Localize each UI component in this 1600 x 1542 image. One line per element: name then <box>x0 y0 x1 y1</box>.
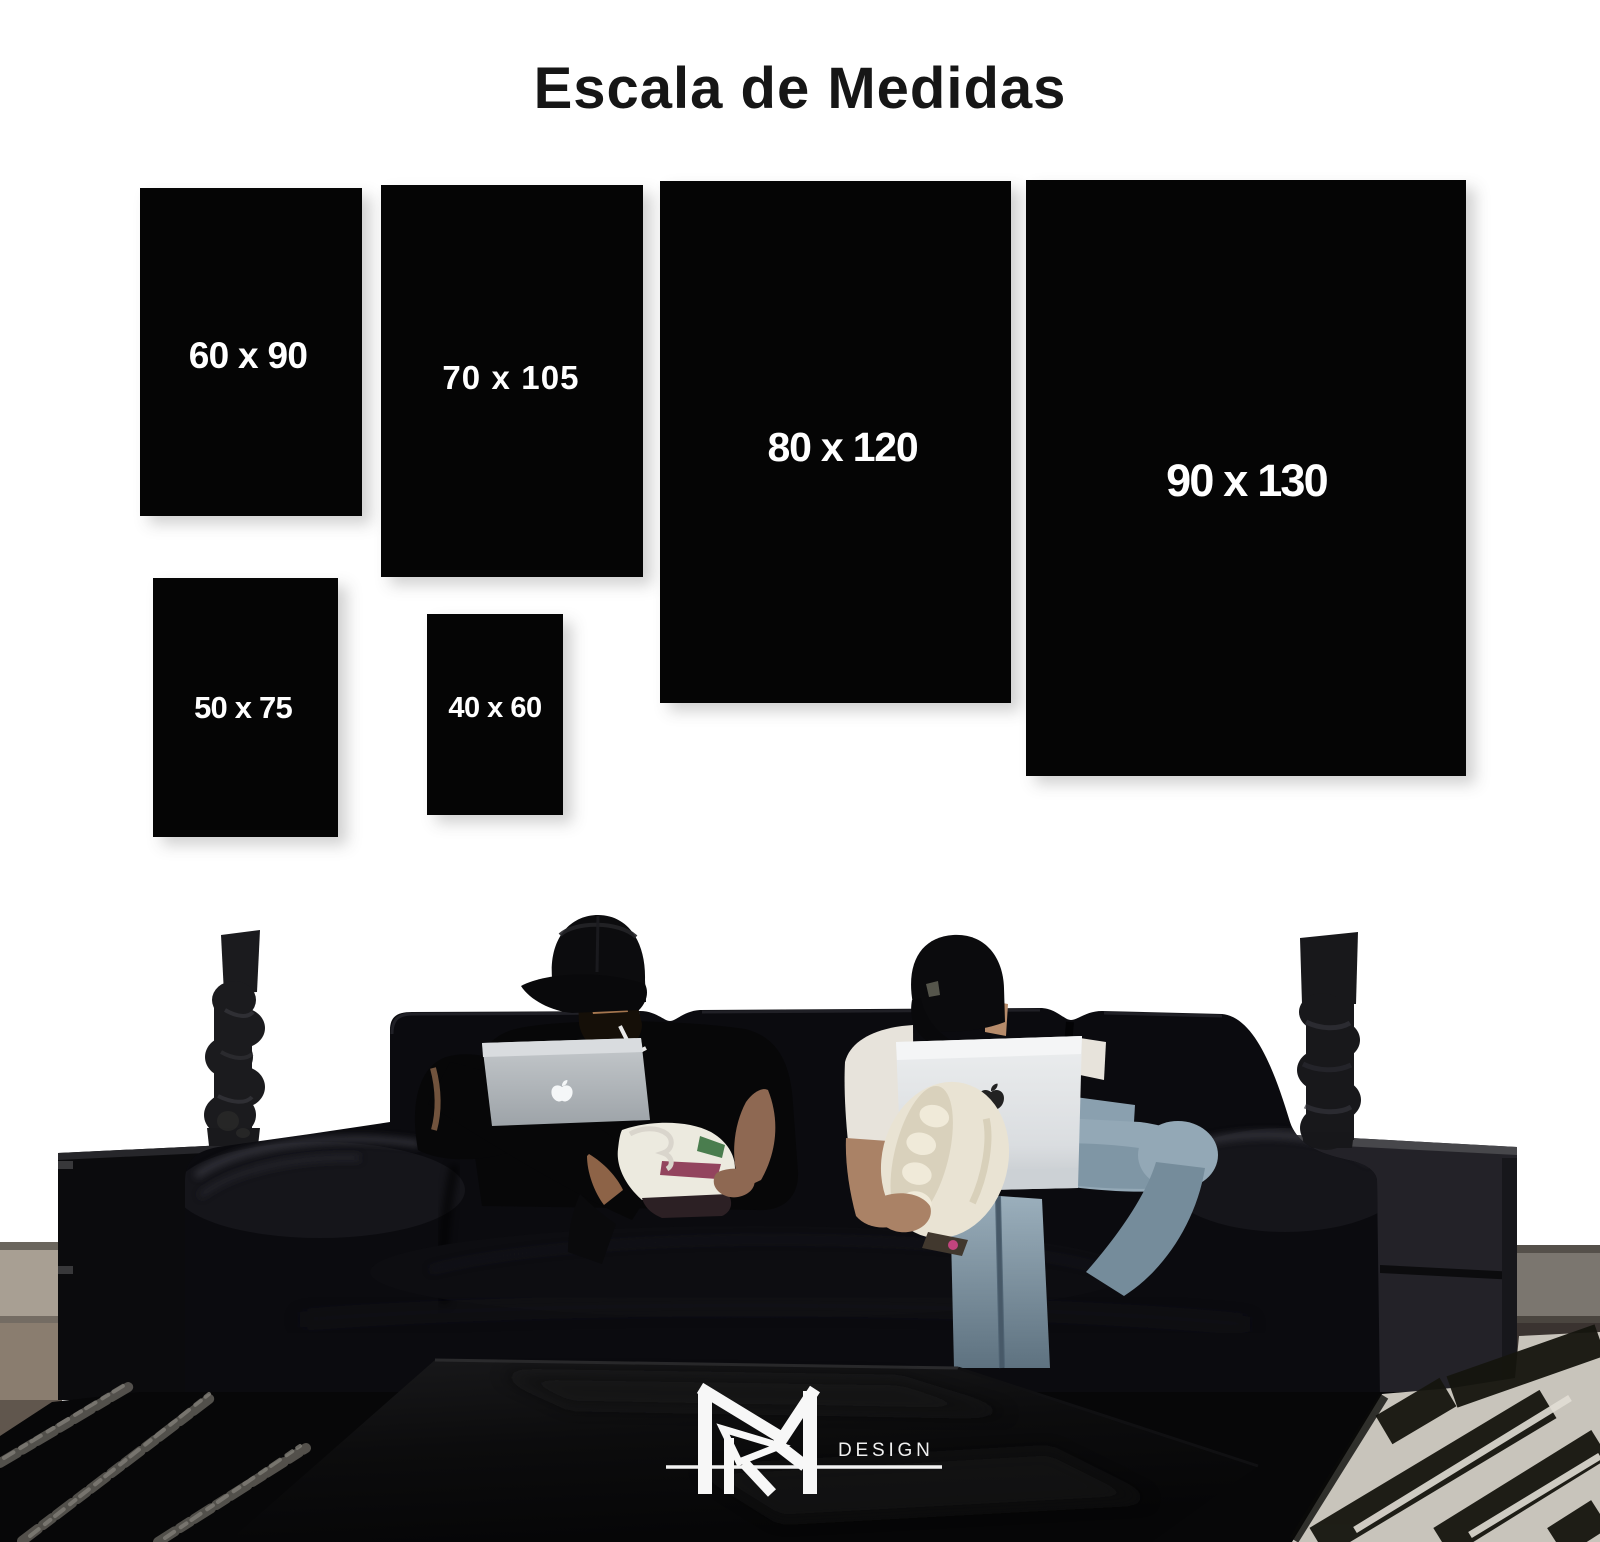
svg-text:DESIGN: DESIGN <box>838 1440 934 1461</box>
